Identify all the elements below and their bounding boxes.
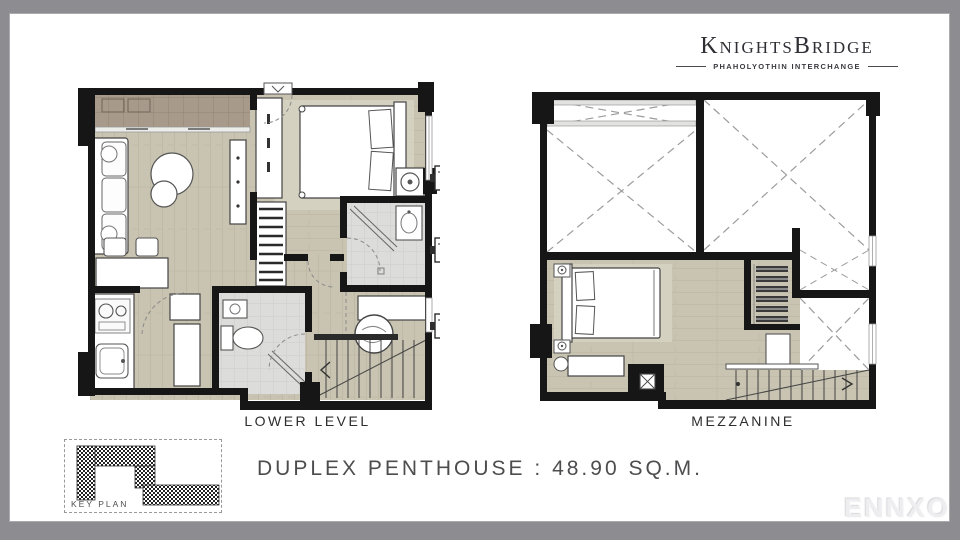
throw-pillow <box>101 146 117 162</box>
mezzanine-label: MEZZANINE <box>668 413 818 429</box>
tv-console <box>230 140 246 224</box>
side-table <box>151 181 177 207</box>
stool <box>554 357 568 371</box>
cabinet <box>766 334 790 366</box>
brand-subtitle-row: PHAHOLYOTHIN INTERCHANGE <box>662 62 912 71</box>
void-lower-right <box>800 298 869 370</box>
bath-sink <box>223 300 247 318</box>
pillow <box>369 109 394 148</box>
nightstand <box>554 264 570 277</box>
railing <box>547 121 696 126</box>
bathroom-upper <box>347 203 425 285</box>
kitchen-sink <box>96 344 128 378</box>
chair <box>104 238 126 256</box>
drawer-unit <box>256 202 286 286</box>
sliding-door <box>95 127 250 132</box>
dining-table <box>96 258 168 288</box>
wardrobe <box>256 98 282 198</box>
handrail <box>726 364 818 369</box>
lower-level-drawing <box>78 82 440 412</box>
stove <box>95 299 130 333</box>
unit-caption: DUPLEX PENTHOUSE : 48.90 SQ.M. <box>40 457 920 481</box>
balcony <box>95 95 250 132</box>
refrigerator <box>170 294 200 320</box>
sofa <box>90 138 128 254</box>
key-plan-label: KEY PLAN <box>71 499 128 509</box>
pillow <box>575 272 594 301</box>
brand-subtitle: PHAHOLYOTHIN INTERCHANGE <box>713 62 861 71</box>
bed <box>562 264 660 342</box>
bed <box>299 102 406 202</box>
tall-cabinet <box>174 324 200 386</box>
decorative-line <box>868 66 898 67</box>
bathroom-lower <box>219 293 305 394</box>
lower-level-floor-plan <box>78 82 440 412</box>
bath-sink <box>396 206 422 240</box>
watermark: ENNXO <box>844 493 950 524</box>
nightstand <box>554 340 570 353</box>
void-strip <box>547 100 696 126</box>
void-left <box>547 130 696 252</box>
decorative-line <box>676 66 706 67</box>
brand-logo: KnightsBridge PHAHOLYOTHIN INTERCHANGE <box>662 34 912 71</box>
mezzanine-floor-plan <box>528 88 880 410</box>
brand-name: KnightsBridge <box>662 34 912 59</box>
chair <box>136 238 158 256</box>
toilet <box>221 326 263 350</box>
mezzanine-drawing <box>528 88 880 410</box>
pillow <box>369 151 394 190</box>
washing-machine <box>396 168 424 196</box>
pillow <box>575 306 594 335</box>
lower-level-label: LOWER LEVEL <box>235 413 380 429</box>
building-wing <box>143 485 219 505</box>
brochure-page: { "window": { "frame_color": "#8c8c91", … <box>0 0 960 540</box>
vent-shaft <box>640 374 655 389</box>
